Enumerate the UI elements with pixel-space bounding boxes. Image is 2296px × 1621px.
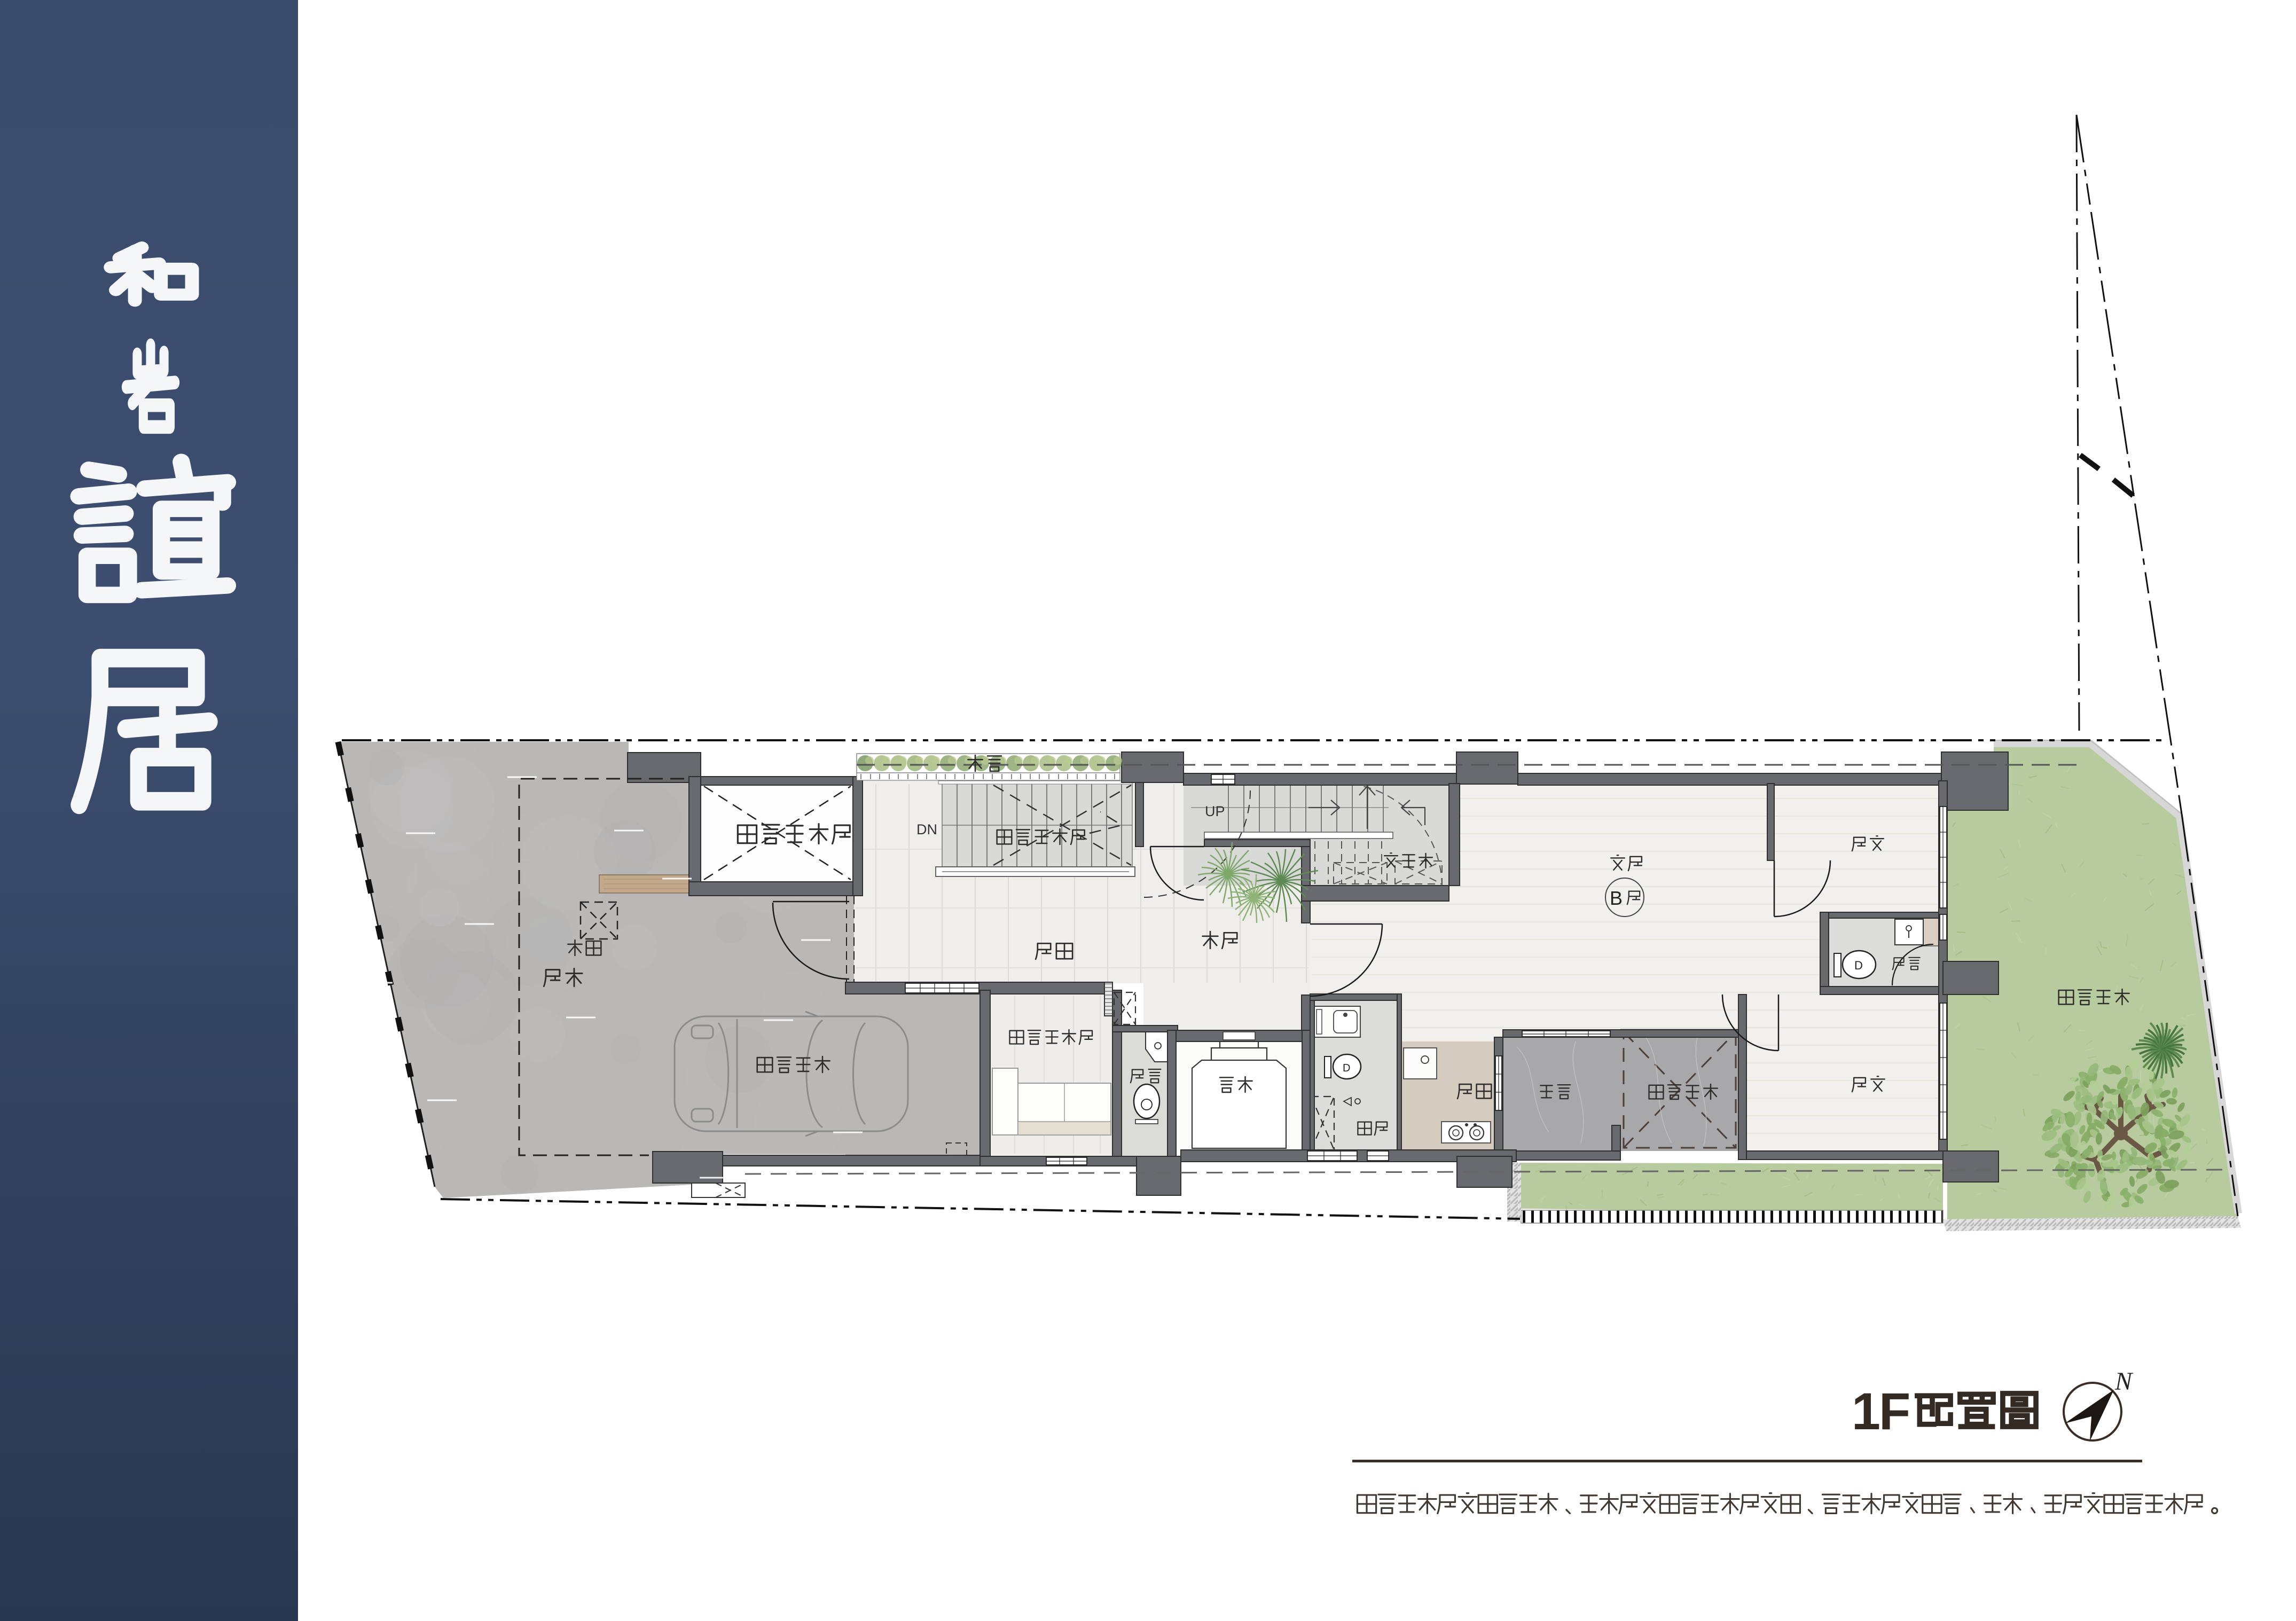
svg-text:B: B (1610, 887, 1623, 909)
svg-text:UP: UP (1205, 803, 1225, 819)
svg-text:D: D (1343, 1062, 1350, 1074)
svg-text:1F: 1F (1852, 1382, 1909, 1440)
svg-text:N: N (2114, 1367, 2134, 1396)
svg-text:D: D (1854, 959, 1863, 972)
svg-text:DN: DN (916, 821, 937, 837)
